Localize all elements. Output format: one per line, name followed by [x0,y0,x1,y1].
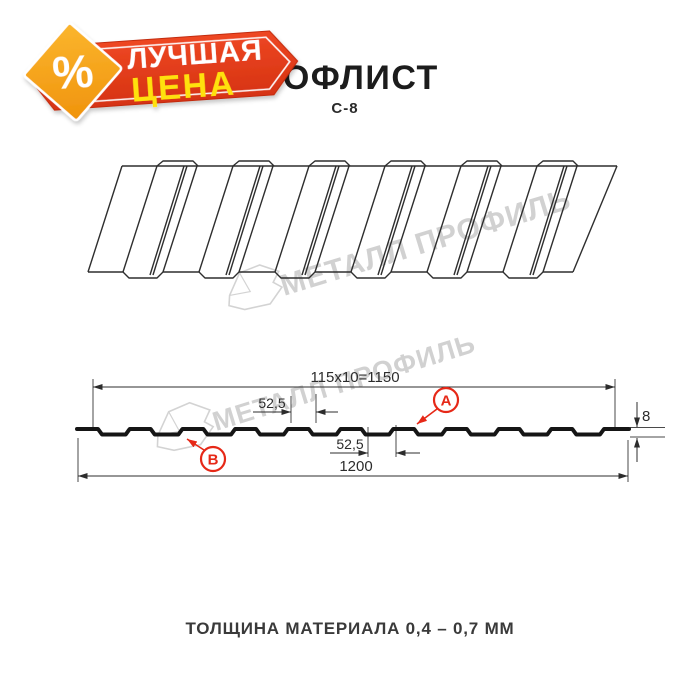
percent-diamond: % [20,19,126,125]
dim-pitch-bottom-label: 52,5 [336,436,363,452]
product-card: МЕТАЛЛ ПРОФИЛЬ МЕТАЛЛ ПРОФИЛЬ ПРОФЛИСТ С… [0,0,700,700]
sheet-right-edge [573,166,617,272]
rib-top-cap [233,161,274,166]
profile-cross-section: 115x10=1150 52,5 52,5 1200 8 А В [77,369,665,482]
watermark-text: МЕТАЛЛ ПРОФИЛЬ [276,183,575,303]
label-a-text: А [441,393,452,410]
dim-overall-width-label: 1200 [339,458,372,475]
percent-icon: % [51,44,95,99]
dim-height-label: 8 [642,408,650,425]
dim-total-top-label: 115x10=1150 [310,369,399,386]
rib-left-line [199,166,233,272]
dim-pitch-top-label: 52,5 [258,395,285,411]
product-diagram-canvas: МЕТАЛЛ ПРОФИЛЬ МЕТАЛЛ ПРОФИЛЬ ПРОФЛИСТ С… [0,0,700,700]
sheet-left-edge [88,166,122,272]
rib-inner-line [229,166,263,275]
rib-top-cap [309,161,350,166]
rib-inner-line [153,166,187,275]
rib-left-line [275,166,309,272]
rib-top-cap [461,161,502,166]
rib-top-cap [537,161,578,166]
label-b-marker: В [187,439,225,471]
best-price-badge: ЛУЧШАЯ ЦЕНА % [20,7,301,125]
label-b-text: В [208,452,219,469]
rib-top-cap [385,161,426,166]
rib-left-line [123,166,157,272]
badge-text-line2: ЦЕНА [130,64,237,109]
watermark-logo-icon [152,400,216,453]
label-a-marker: А [417,388,458,424]
rib-top-cap [157,161,198,166]
product-model: С-8 [331,100,358,117]
material-thickness-note: ТОЛЩИНА МАТЕРИАЛА 0,4 – 0,7 ММ [185,619,514,638]
